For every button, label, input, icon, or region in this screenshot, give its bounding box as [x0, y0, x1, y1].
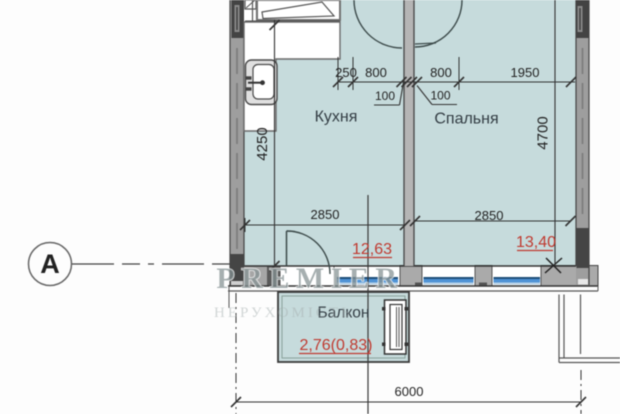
svg-text:250: 250: [335, 65, 357, 80]
svg-text:6000: 6000: [395, 384, 424, 399]
svg-text:НЕРУХОМІСТЬ: НЕРУХОМІСТЬ: [214, 305, 353, 321]
svg-text:PREMIER: PREMIER: [216, 262, 403, 295]
svg-text:100: 100: [430, 89, 450, 103]
svg-text:13,40: 13,40: [516, 234, 556, 251]
svg-text:4700: 4700: [535, 116, 552, 149]
svg-text:4250: 4250: [254, 127, 271, 160]
svg-text:800: 800: [365, 65, 387, 80]
svg-text:Кухня: Кухня: [315, 109, 358, 126]
svg-text:100: 100: [375, 89, 395, 103]
svg-text:12,63: 12,63: [352, 241, 392, 258]
svg-text:Спальня: Спальня: [434, 111, 498, 128]
svg-text:2850: 2850: [311, 207, 340, 222]
svg-text:A: A: [40, 249, 60, 279]
svg-text:2850: 2850: [475, 208, 504, 223]
svg-text:800: 800: [430, 65, 452, 80]
svg-text:2,76(0,83): 2,76(0,83): [300, 337, 373, 354]
svg-text:1950: 1950: [511, 65, 540, 80]
